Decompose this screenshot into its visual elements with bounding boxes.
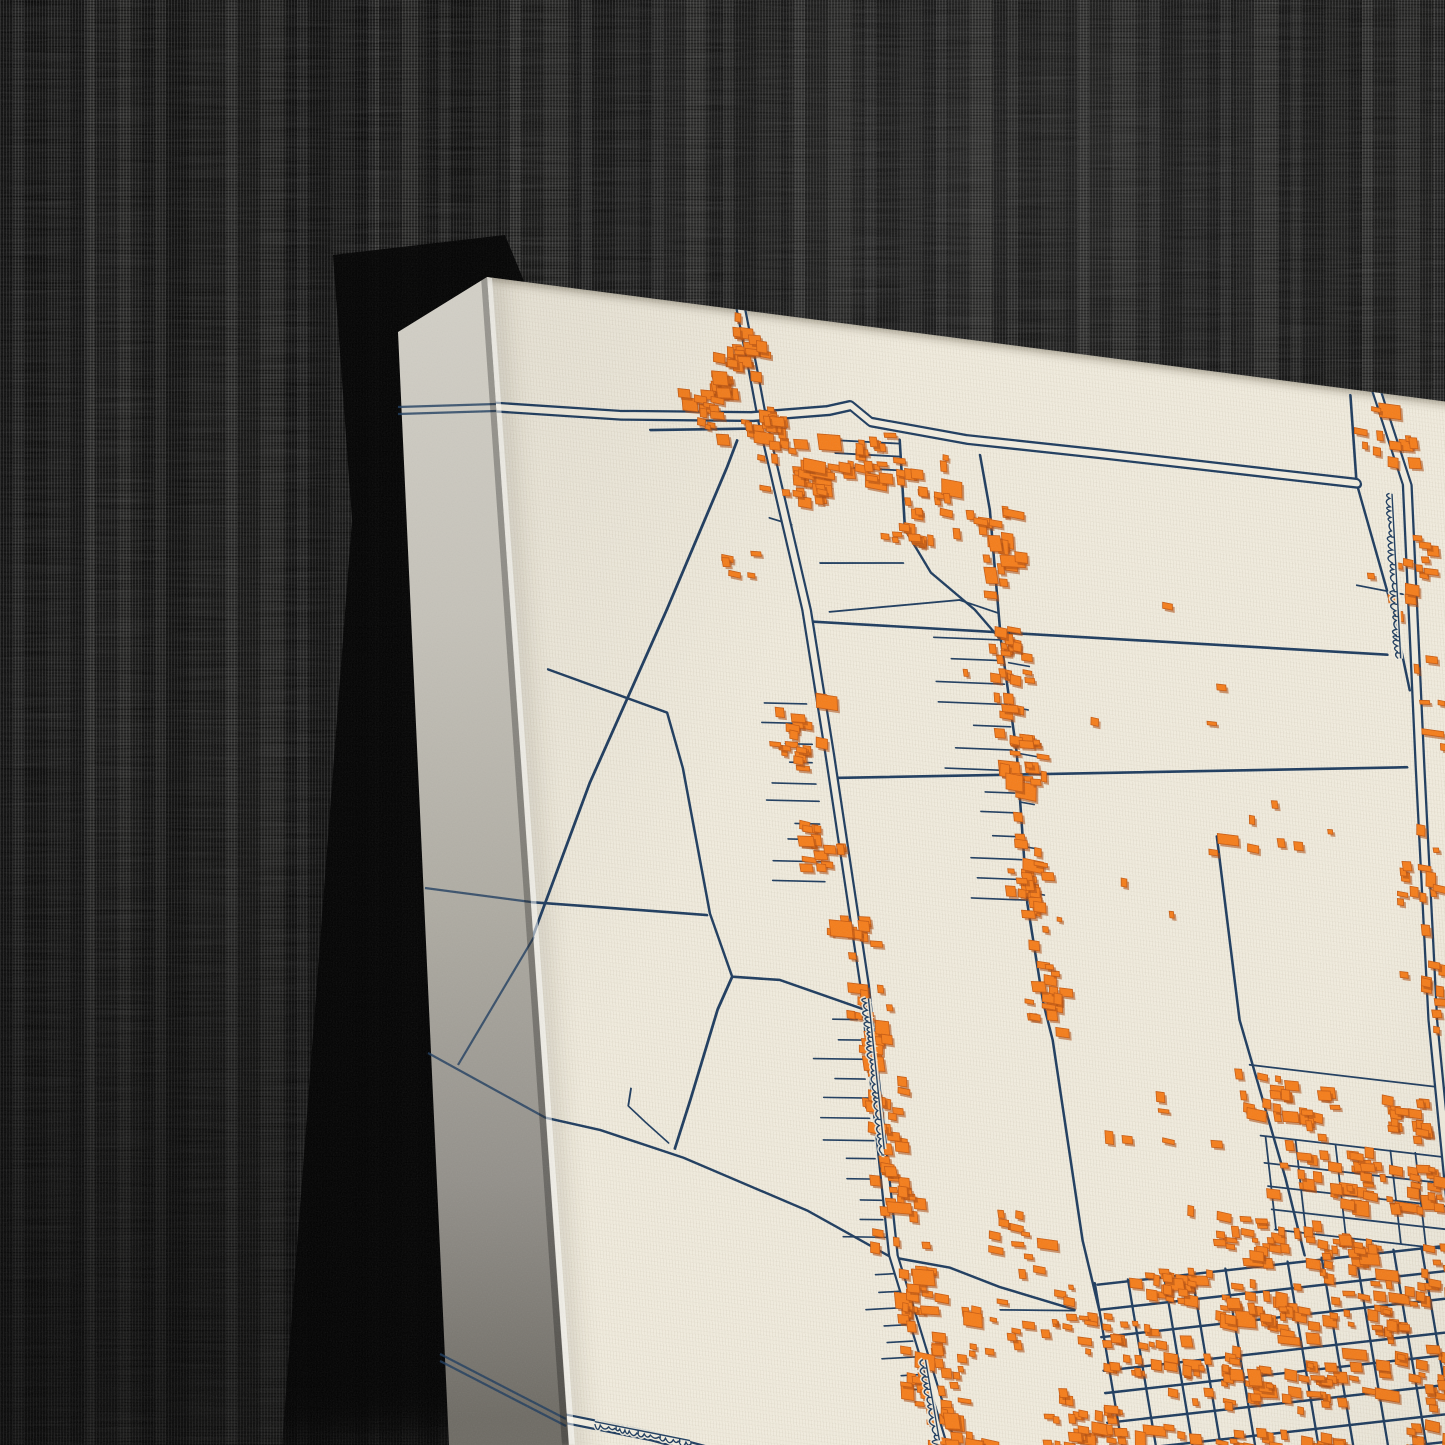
product-photo <box>0 0 1445 1445</box>
photo-grain <box>0 0 1445 1445</box>
